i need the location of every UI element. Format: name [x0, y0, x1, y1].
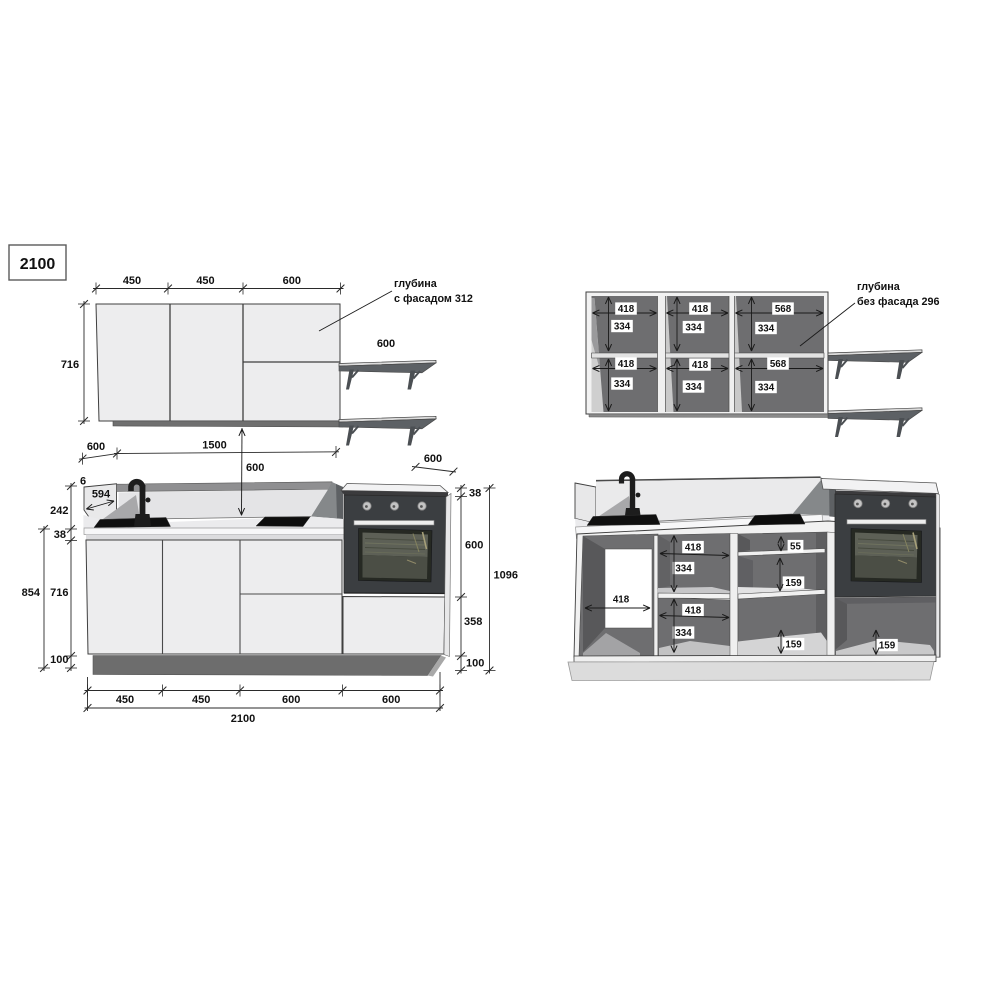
svg-text:2100: 2100	[231, 713, 255, 725]
svg-text:334: 334	[685, 382, 702, 393]
svg-text:600: 600	[377, 338, 395, 350]
svg-text:159: 159	[785, 578, 802, 589]
svg-text:418: 418	[618, 359, 635, 370]
svg-text:1096: 1096	[494, 570, 518, 582]
svg-text:716: 716	[50, 587, 68, 599]
svg-text:418: 418	[685, 606, 702, 617]
svg-text:418: 418	[613, 595, 630, 606]
svg-text:334: 334	[675, 564, 692, 575]
svg-text:600: 600	[382, 694, 400, 706]
svg-text:6: 6	[80, 476, 86, 488]
svg-text:100: 100	[50, 654, 68, 666]
svg-text:600: 600	[246, 462, 264, 474]
svg-text:450: 450	[192, 694, 210, 706]
svg-text:334: 334	[614, 379, 631, 390]
svg-text:с фасадом 312: с фасадом 312	[394, 293, 473, 305]
svg-text:100: 100	[466, 658, 484, 670]
svg-text:418: 418	[692, 304, 709, 315]
svg-text:450: 450	[123, 275, 141, 287]
svg-text:716: 716	[61, 359, 79, 371]
svg-text:38: 38	[469, 488, 481, 500]
svg-text:334: 334	[614, 322, 631, 333]
svg-text:242: 242	[50, 505, 68, 517]
svg-text:600: 600	[87, 441, 105, 453]
svg-text:854: 854	[22, 587, 41, 599]
svg-text:без фасада 296: без фасада 296	[857, 296, 940, 308]
svg-text:159: 159	[785, 640, 802, 651]
svg-text:глубина: глубина	[857, 281, 901, 293]
svg-text:334: 334	[685, 323, 702, 334]
svg-text:334: 334	[675, 628, 692, 639]
svg-text:418: 418	[685, 543, 702, 554]
svg-text:2100: 2100	[20, 256, 56, 273]
svg-text:418: 418	[692, 360, 709, 371]
svg-text:568: 568	[775, 304, 792, 315]
svg-text:334: 334	[758, 324, 775, 335]
svg-text:600: 600	[282, 694, 300, 706]
svg-text:334: 334	[758, 383, 775, 394]
svg-text:568: 568	[770, 359, 787, 370]
svg-text:55: 55	[790, 542, 801, 553]
svg-text:418: 418	[618, 304, 635, 315]
svg-text:594: 594	[92, 489, 111, 501]
svg-text:1500: 1500	[202, 440, 226, 452]
svg-text:159: 159	[879, 641, 896, 652]
svg-text:450: 450	[196, 275, 214, 287]
svg-text:600: 600	[465, 540, 483, 552]
svg-text:358: 358	[464, 616, 482, 628]
svg-text:450: 450	[116, 694, 134, 706]
svg-text:38: 38	[54, 529, 66, 541]
svg-text:600: 600	[283, 275, 301, 287]
svg-text:600: 600	[424, 453, 442, 465]
svg-text:глубина: глубина	[394, 278, 438, 290]
